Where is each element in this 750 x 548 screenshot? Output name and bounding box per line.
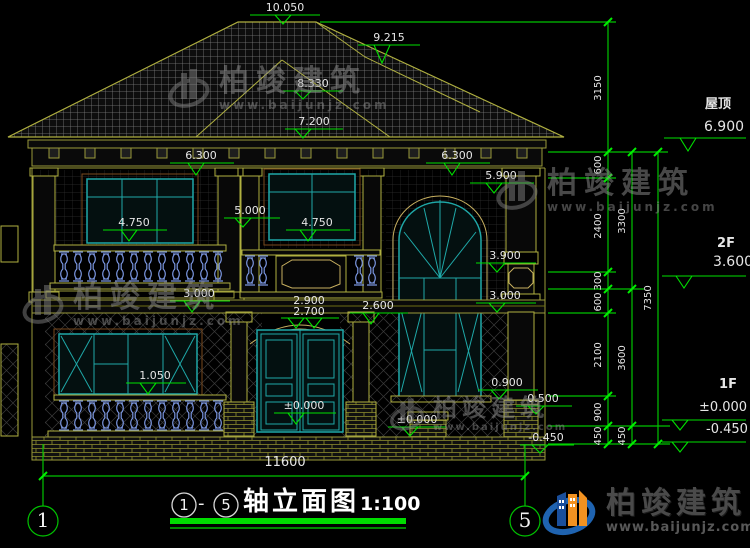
elev-roof: 6.900 [692,121,750,133]
elev-transom-right: 3.900 [474,250,536,262]
elev-rail-center: 4.750 [284,217,350,229]
elev-1f: ±0.000 [688,402,750,414]
elev-ridge-main: 10.050 [250,2,320,14]
watermark: 柏竣建筑 www.baijunjz.com [166,66,390,112]
watermark-brand: 柏竣建筑 [433,395,567,421]
watermark-url: www.baijunjz.com [219,98,390,112]
title-dash: - [198,495,205,513]
elev-porch-rail: 1.050 [124,370,186,382]
label-roof: 屋顶 [688,99,748,111]
elev-grade: -0.450 [694,424,750,436]
watermark-url: www.baijunjz.com [547,200,718,214]
brand-logo: 柏竣建筑 www.baijunjz.com [540,482,750,540]
dim-600b: 600 [591,272,607,332]
axis-bubble-1: 1 [33,509,53,531]
elev-band-right: 3.000 [474,290,536,302]
elev-2f: 3.600 [700,256,750,268]
elev-porch-roof: 7.200 [283,116,345,128]
brand-url: www.baijunjz.com [606,520,750,535]
drawing-title: 轴立面图 [243,488,359,516]
dim-7350: 7350 [641,268,657,328]
title-axis-from: 1 [176,497,192,513]
elev-threshold: ±0.000 [270,400,338,412]
watermark-logo-icon [388,396,426,434]
elev-eave-right: 6.300 [424,150,490,162]
watermark-logo-icon [494,168,540,214]
watermark-brand: 柏竣建筑 [73,282,244,314]
watermark-url: www.baijunjz.com [433,421,567,435]
elev-capital-center: 5.000 [220,205,280,217]
elev-eave-left: 6.300 [168,150,234,162]
drawing-scale: 1:100 [360,493,420,515]
watermark: 柏竣建筑 www.baijunjz.com [20,282,244,328]
label-2f: 2F [704,238,748,250]
cad-elevation-drawing: 10.050 9.215 8.330 7.200 6.300 6.300 5.9… [0,0,750,548]
elev-sill-right: 0.900 [476,377,538,389]
balcony-center [240,250,382,298]
dim-3150: 3150 [591,58,607,118]
axis-bubble-5: 5 [515,509,535,531]
brand-logo-icon [540,482,598,540]
title-axis-to: 5 [218,497,234,513]
entrance-door [250,325,350,432]
elev-rail-left: 4.750 [101,217,167,229]
watermark-logo-icon [20,282,66,328]
elev-door-head: 2.600 [348,300,408,312]
dim-2100: 2100 [591,325,607,385]
dim-450b: 450 [615,406,631,466]
window-1f-left [54,329,202,399]
elev-ridge-right: 9.215 [356,32,422,44]
dim-3600: 3600 [615,328,631,388]
watermark: 柏竣建筑 www.baijunjz.com [388,395,567,435]
window-2f-left [82,174,198,248]
dim-total-width: 11600 [240,457,330,469]
watermark-brand: 柏竣建筑 [547,168,718,200]
elev-arch-spring: 2.700 [279,306,339,318]
watermark-url: www.baijunjz.com [73,314,244,328]
label-1f: 1F [706,379,750,391]
watermark: 柏竣建筑 www.baijunjz.com [494,168,718,214]
dim-450a: 450 [591,406,607,466]
watermark-logo-icon [166,66,212,112]
watermark-brand: 柏竣建筑 [219,66,390,98]
brand-name: 柏竣建筑 [606,488,750,520]
